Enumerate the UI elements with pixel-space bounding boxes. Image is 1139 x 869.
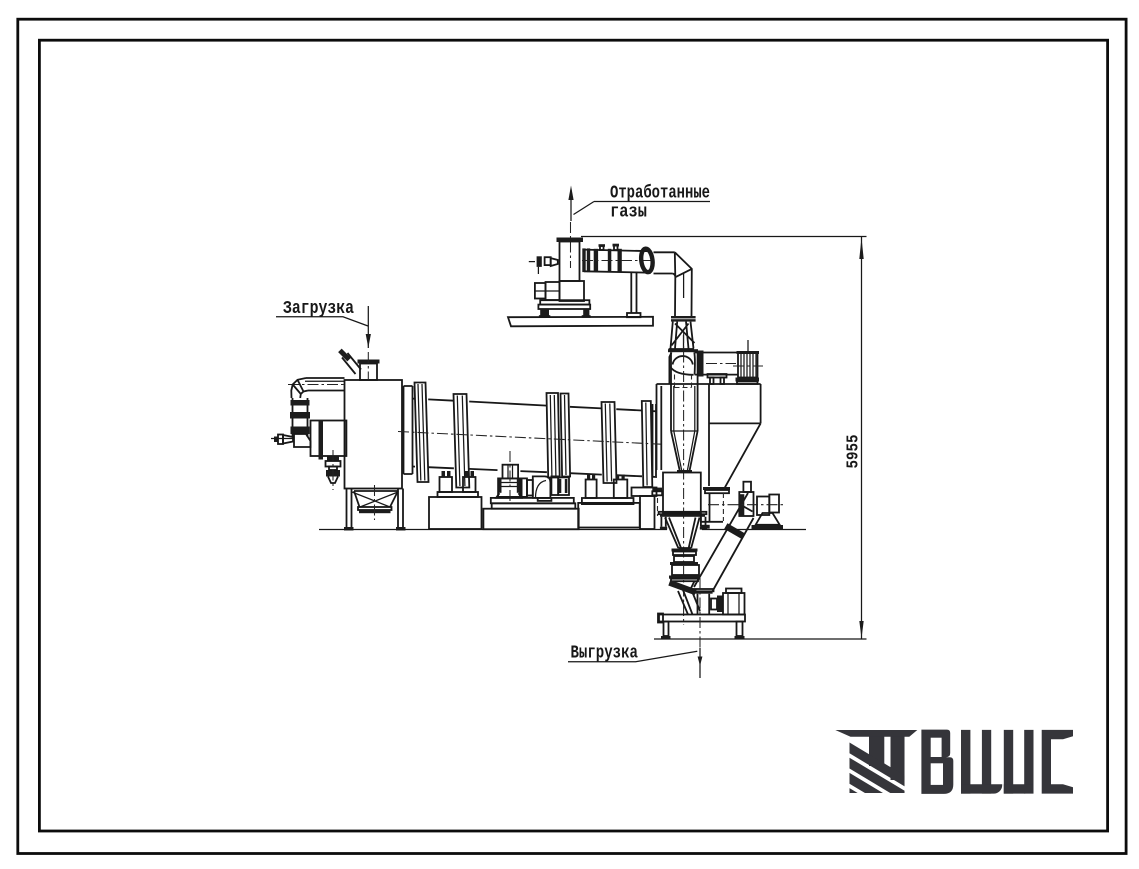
svg-text:газы: газы xyxy=(610,202,647,223)
svg-text:Отработанные: Отработанные xyxy=(610,183,710,204)
svg-text:Загрузка: Загрузка xyxy=(283,299,354,319)
svg-text:5955: 5955 xyxy=(845,435,864,469)
svg-text:Выгрузка: Выгрузка xyxy=(571,644,639,664)
